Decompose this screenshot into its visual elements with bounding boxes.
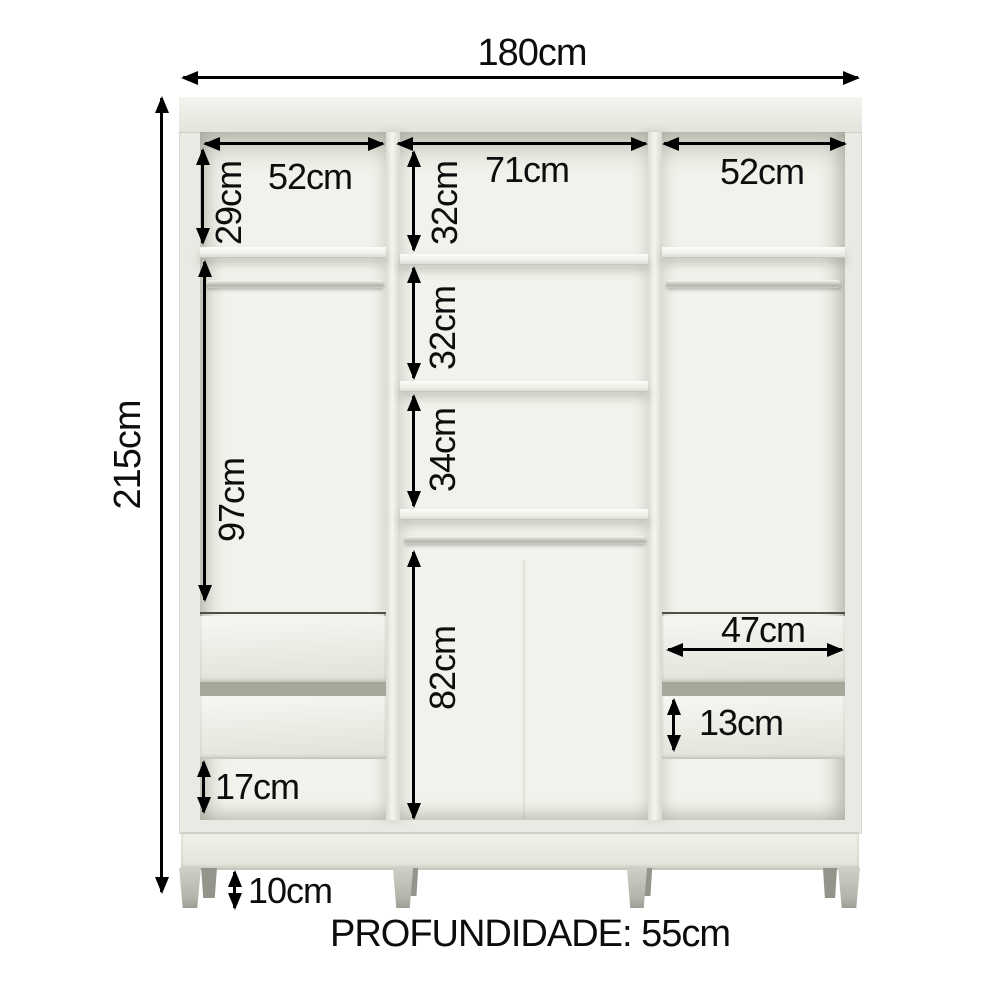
middle-column-width-label: 71cm — [485, 152, 569, 188]
right-column-width-label: 52cm — [720, 154, 804, 190]
middle-section-2-label: 32cm — [425, 286, 461, 370]
middle-hanging-rod — [404, 536, 646, 544]
left-drawer-unit — [200, 612, 386, 759]
left-top-shelf — [200, 247, 386, 258]
middle-section-2-arrow — [412, 268, 415, 378]
foot-back-4 — [822, 868, 838, 898]
middle-section-1-arrow — [412, 152, 415, 250]
foot-front-1 — [177, 868, 203, 908]
divider-left — [386, 132, 400, 820]
plinth — [181, 832, 859, 870]
left-top-section-arrow — [201, 150, 204, 243]
right-top-shelf — [662, 247, 845, 258]
left-drawer-1 — [200, 616, 386, 682]
wardrobe-top-panel — [179, 97, 862, 133]
feet-height-arrow — [233, 872, 236, 908]
left-column-width-arrow — [205, 142, 383, 145]
middle-section-3-arrow — [412, 396, 415, 506]
total-width-label: 180cm — [477, 34, 586, 72]
left-hanging-section-label: 97cm — [214, 458, 250, 542]
total-height-label: 215cm — [109, 400, 147, 509]
divider-right — [648, 132, 662, 820]
depth-note: PROFUNDIDADE: 55cm — [330, 915, 730, 953]
middle-shelf-3 — [400, 509, 648, 520]
middle-section-1-label: 32cm — [427, 161, 463, 245]
middle-shelf-2 — [400, 381, 648, 392]
middle-bottom-section-label: 82cm — [425, 626, 461, 710]
middle-column-width-arrow — [398, 142, 646, 145]
back-panel-seam — [523, 560, 525, 818]
total-width-arrow — [183, 76, 858, 79]
foot-back-1 — [200, 868, 218, 898]
middle-section-3-label: 34cm — [425, 408, 461, 492]
right-drawer-gap — [662, 682, 845, 696]
left-bottom-gap-label: 17cm — [215, 769, 299, 805]
right-hanging-rod — [666, 280, 841, 288]
foot-front-2 — [391, 868, 415, 908]
foot-front-4 — [836, 868, 862, 908]
left-drawer-gap — [200, 682, 386, 696]
drawer-height-arrow — [672, 700, 675, 750]
drawer-width-label: 47cm — [721, 612, 805, 648]
right-column-width-arrow — [664, 142, 845, 145]
left-column-width-label: 52cm — [268, 159, 352, 195]
left-hanging-section-arrow — [203, 262, 206, 600]
wardrobe-dimension-diagram: 180cm 215cm 52cm 29cm 71cm 32cm 52cm 32c… — [0, 0, 1000, 1000]
left-drawer-2 — [200, 696, 386, 759]
middle-bottom-section-arrow — [412, 552, 415, 818]
left-bottom-gap-arrow — [202, 762, 205, 812]
feet-height-label: 10cm — [248, 873, 332, 909]
total-height-arrow — [160, 98, 163, 892]
left-top-section-label: 29cm — [211, 161, 247, 245]
drawer-height-label: 13cm — [699, 705, 783, 741]
middle-shelf-1 — [400, 254, 648, 265]
left-hanging-rod — [206, 280, 384, 288]
